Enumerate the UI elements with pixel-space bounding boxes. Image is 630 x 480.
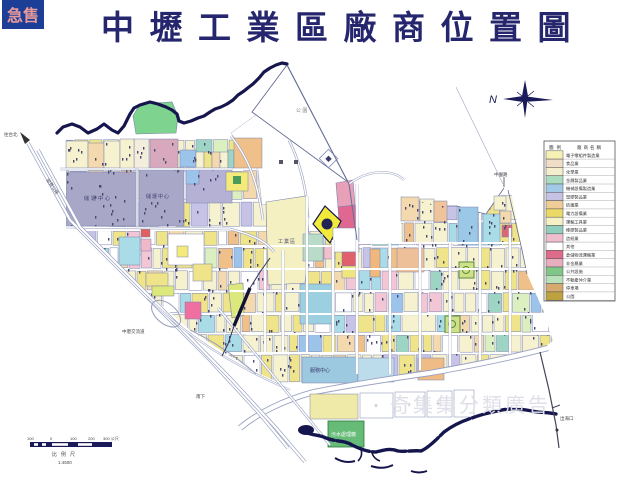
svg-text:儲運中心: 儲運中心 bbox=[146, 193, 170, 200]
svg-text:中壢交流道: 中壢交流道 bbox=[122, 328, 145, 335]
svg-text:廠商名稱: 廠商名稱 bbox=[577, 144, 603, 151]
svg-text:N: N bbox=[489, 94, 497, 106]
svg-text:紡織業: 紡織業 bbox=[566, 202, 579, 209]
svg-text:服務中心: 服務中心 bbox=[310, 367, 330, 374]
svg-text:化學業: 化學業 bbox=[566, 169, 579, 176]
svg-text:非金屬業: 非金屬業 bbox=[566, 260, 584, 267]
svg-text:電力設備業: 電力設備業 bbox=[566, 210, 588, 217]
svg-text:工業區: 工業區 bbox=[278, 238, 296, 245]
svg-text:停車場: 停車場 bbox=[566, 285, 579, 292]
svg-text:100: 100 bbox=[70, 436, 77, 441]
svg-text:十: 十 bbox=[374, 402, 378, 408]
svg-text:南下: 南下 bbox=[196, 393, 205, 400]
svg-text:1:4500: 1:4500 bbox=[58, 460, 72, 465]
svg-text:出海口: 出海口 bbox=[560, 415, 574, 422]
svg-text:中園路: 中園路 bbox=[494, 171, 508, 178]
svg-text:其他: 其他 bbox=[566, 243, 575, 250]
svg-text:儲運中心: 儲運中心 bbox=[84, 195, 112, 202]
svg-text:運輸工具業: 運輸工具業 bbox=[566, 218, 588, 225]
svg-text:往台北: 往台北 bbox=[4, 131, 18, 138]
svg-text:公 園: 公 園 bbox=[296, 108, 307, 114]
svg-text:倉儲物流運輸業: 倉儲物流運輸業 bbox=[566, 252, 596, 259]
svg-text:電子零組件製造業: 電子零組件製造業 bbox=[566, 152, 600, 159]
svg-text:公共設施: 公共設施 bbox=[566, 268, 584, 275]
svg-text:塑膠製品業: 塑膠製品業 bbox=[566, 193, 588, 200]
svg-text:食品業: 食品業 bbox=[566, 160, 579, 167]
svg-text:300 公尺: 300 公尺 bbox=[103, 436, 119, 441]
svg-text:金屬製品業: 金屬製品業 bbox=[566, 177, 588, 184]
svg-text:污水處理廠: 污水處理廠 bbox=[331, 431, 356, 438]
svg-text:不動產仲介業: 不動產仲介業 bbox=[566, 276, 592, 283]
svg-text:造紙業: 造紙業 bbox=[566, 235, 579, 242]
svg-text:中壢工業區廠商位置圖: 中壢工業區廠商位置圖 bbox=[101, 9, 586, 46]
svg-text:橡膠製品業: 橡膠製品業 bbox=[566, 227, 588, 234]
svg-text:比例尺: 比例尺 bbox=[52, 451, 79, 458]
svg-text:急售: 急售 bbox=[7, 6, 39, 25]
svg-text:100: 100 bbox=[27, 436, 34, 441]
svg-text:圖例: 圖例 bbox=[549, 144, 564, 151]
svg-text:奇集集分類廣告: 奇集集分類廣告 bbox=[390, 394, 551, 417]
svg-text:200: 200 bbox=[88, 436, 95, 441]
svg-text:機械設備製造業: 機械設備製造業 bbox=[566, 185, 596, 192]
